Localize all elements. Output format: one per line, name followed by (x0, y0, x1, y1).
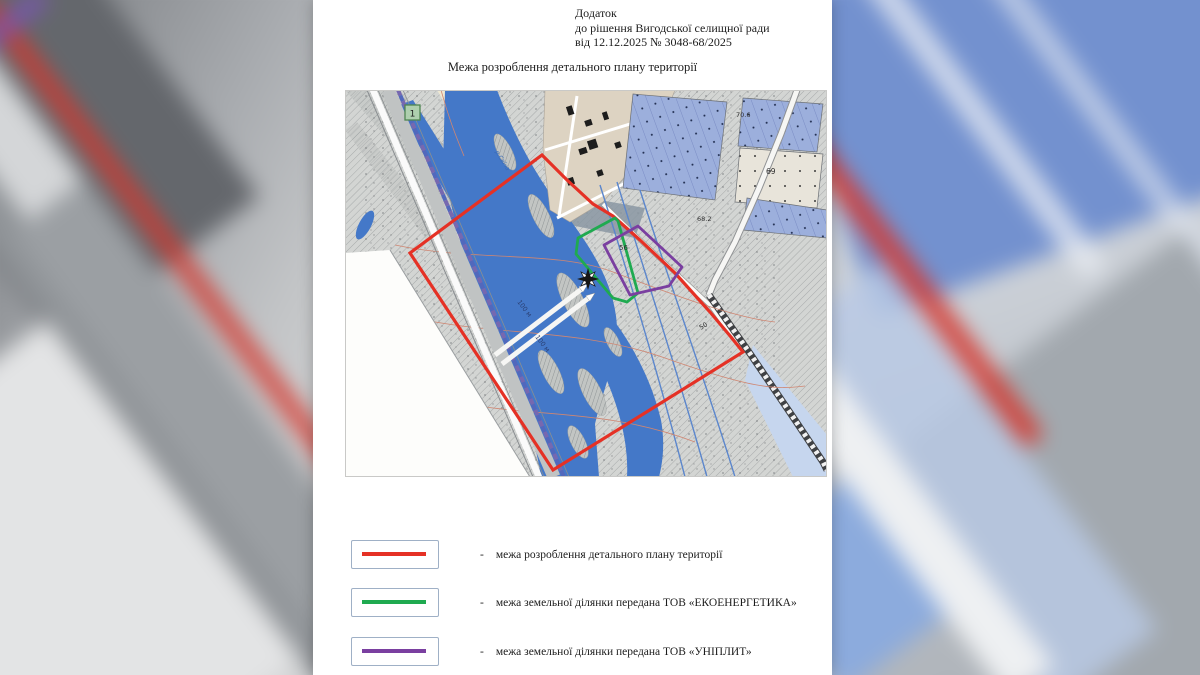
blurred-background-right (832, 0, 1200, 675)
survey-star-icon (577, 268, 599, 290)
legend-item-dpt: - межа розроблення детального плану тери… (351, 541, 722, 568)
legend-swatch-box (351, 637, 439, 666)
blurred-map-zoom-right (832, 0, 1200, 675)
legend-item-label: межа розроблення детального плану терито… (496, 549, 723, 561)
spot-height: 69 (766, 167, 776, 176)
legend-dash: - (480, 646, 484, 658)
territory-map: 100 м 100 м 1 р.Свіча 70.6 69 68.2 (345, 90, 827, 477)
legend-swatch-box (351, 588, 439, 617)
header-line-council: до рішення Вигодської селищної ради (575, 21, 825, 36)
legend-dash: - (480, 597, 484, 609)
blurred-map-zoom-left (0, 0, 313, 675)
spot-height: 70.6 (736, 111, 750, 119)
screenshot-stage: Додаток до рішення Вигодської селищної р… (0, 0, 1200, 675)
block-marker: 1 (405, 105, 420, 120)
legend-swatch-box (351, 540, 439, 569)
legend-line-red (352, 541, 436, 566)
blurred-background-left (0, 0, 313, 675)
header-line-appendix: Додаток (575, 6, 825, 21)
legend-item-ekoenergetika: - межа земельної ділянки передана ТОВ «Е… (351, 589, 797, 616)
spot-height: 56 (619, 244, 628, 252)
legend-item-label: межа земельної ділянки передана ТОВ «ЕКО… (496, 597, 797, 609)
legend-dash: - (480, 549, 484, 561)
legend-item-label: межа земельної ділянки передана ТОВ «УНІ… (496, 646, 752, 658)
spot-height: 68.2 (697, 215, 711, 223)
document-page: Додаток до рішення Вигодської селищної р… (313, 0, 832, 675)
legend-item-uniplyt: - межа земельної ділянки передана ТОВ «У… (351, 638, 752, 665)
document-header: Додаток до рішення Вигодської селищної р… (575, 6, 825, 50)
map-canvas: 100 м 100 м 1 р.Свіча 70.6 69 68.2 (345, 90, 827, 477)
page-title: Межа розроблення детального плану терито… (313, 60, 832, 75)
legend-line-green (352, 589, 436, 614)
block-marker-label: 1 (410, 110, 416, 120)
legend-line-purple (352, 638, 436, 663)
header-line-decision: від 12.12.2025 № 3048-68/2025 (575, 35, 825, 50)
